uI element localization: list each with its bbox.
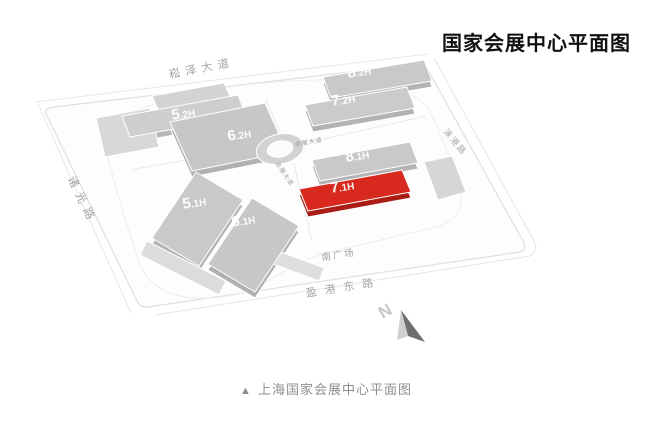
caption-triangle-icon: ▲: [240, 385, 252, 397]
page-title: 国家会展中心平面图: [442, 27, 631, 56]
compass: N: [375, 300, 425, 342]
songze-avenue-label: 崧泽大道: [168, 55, 235, 81]
caption-text: 上海国家会展中心平面图: [258, 382, 412, 397]
compass-letter: N: [375, 300, 395, 323]
figure-caption: ▲上海国家会展中心平面图: [0, 379, 652, 398]
facility-map: 8.2H 7.2H 5.2H 6.2H 8.1H 7.1H 5.1H 6.1H …: [0, 0, 652, 422]
